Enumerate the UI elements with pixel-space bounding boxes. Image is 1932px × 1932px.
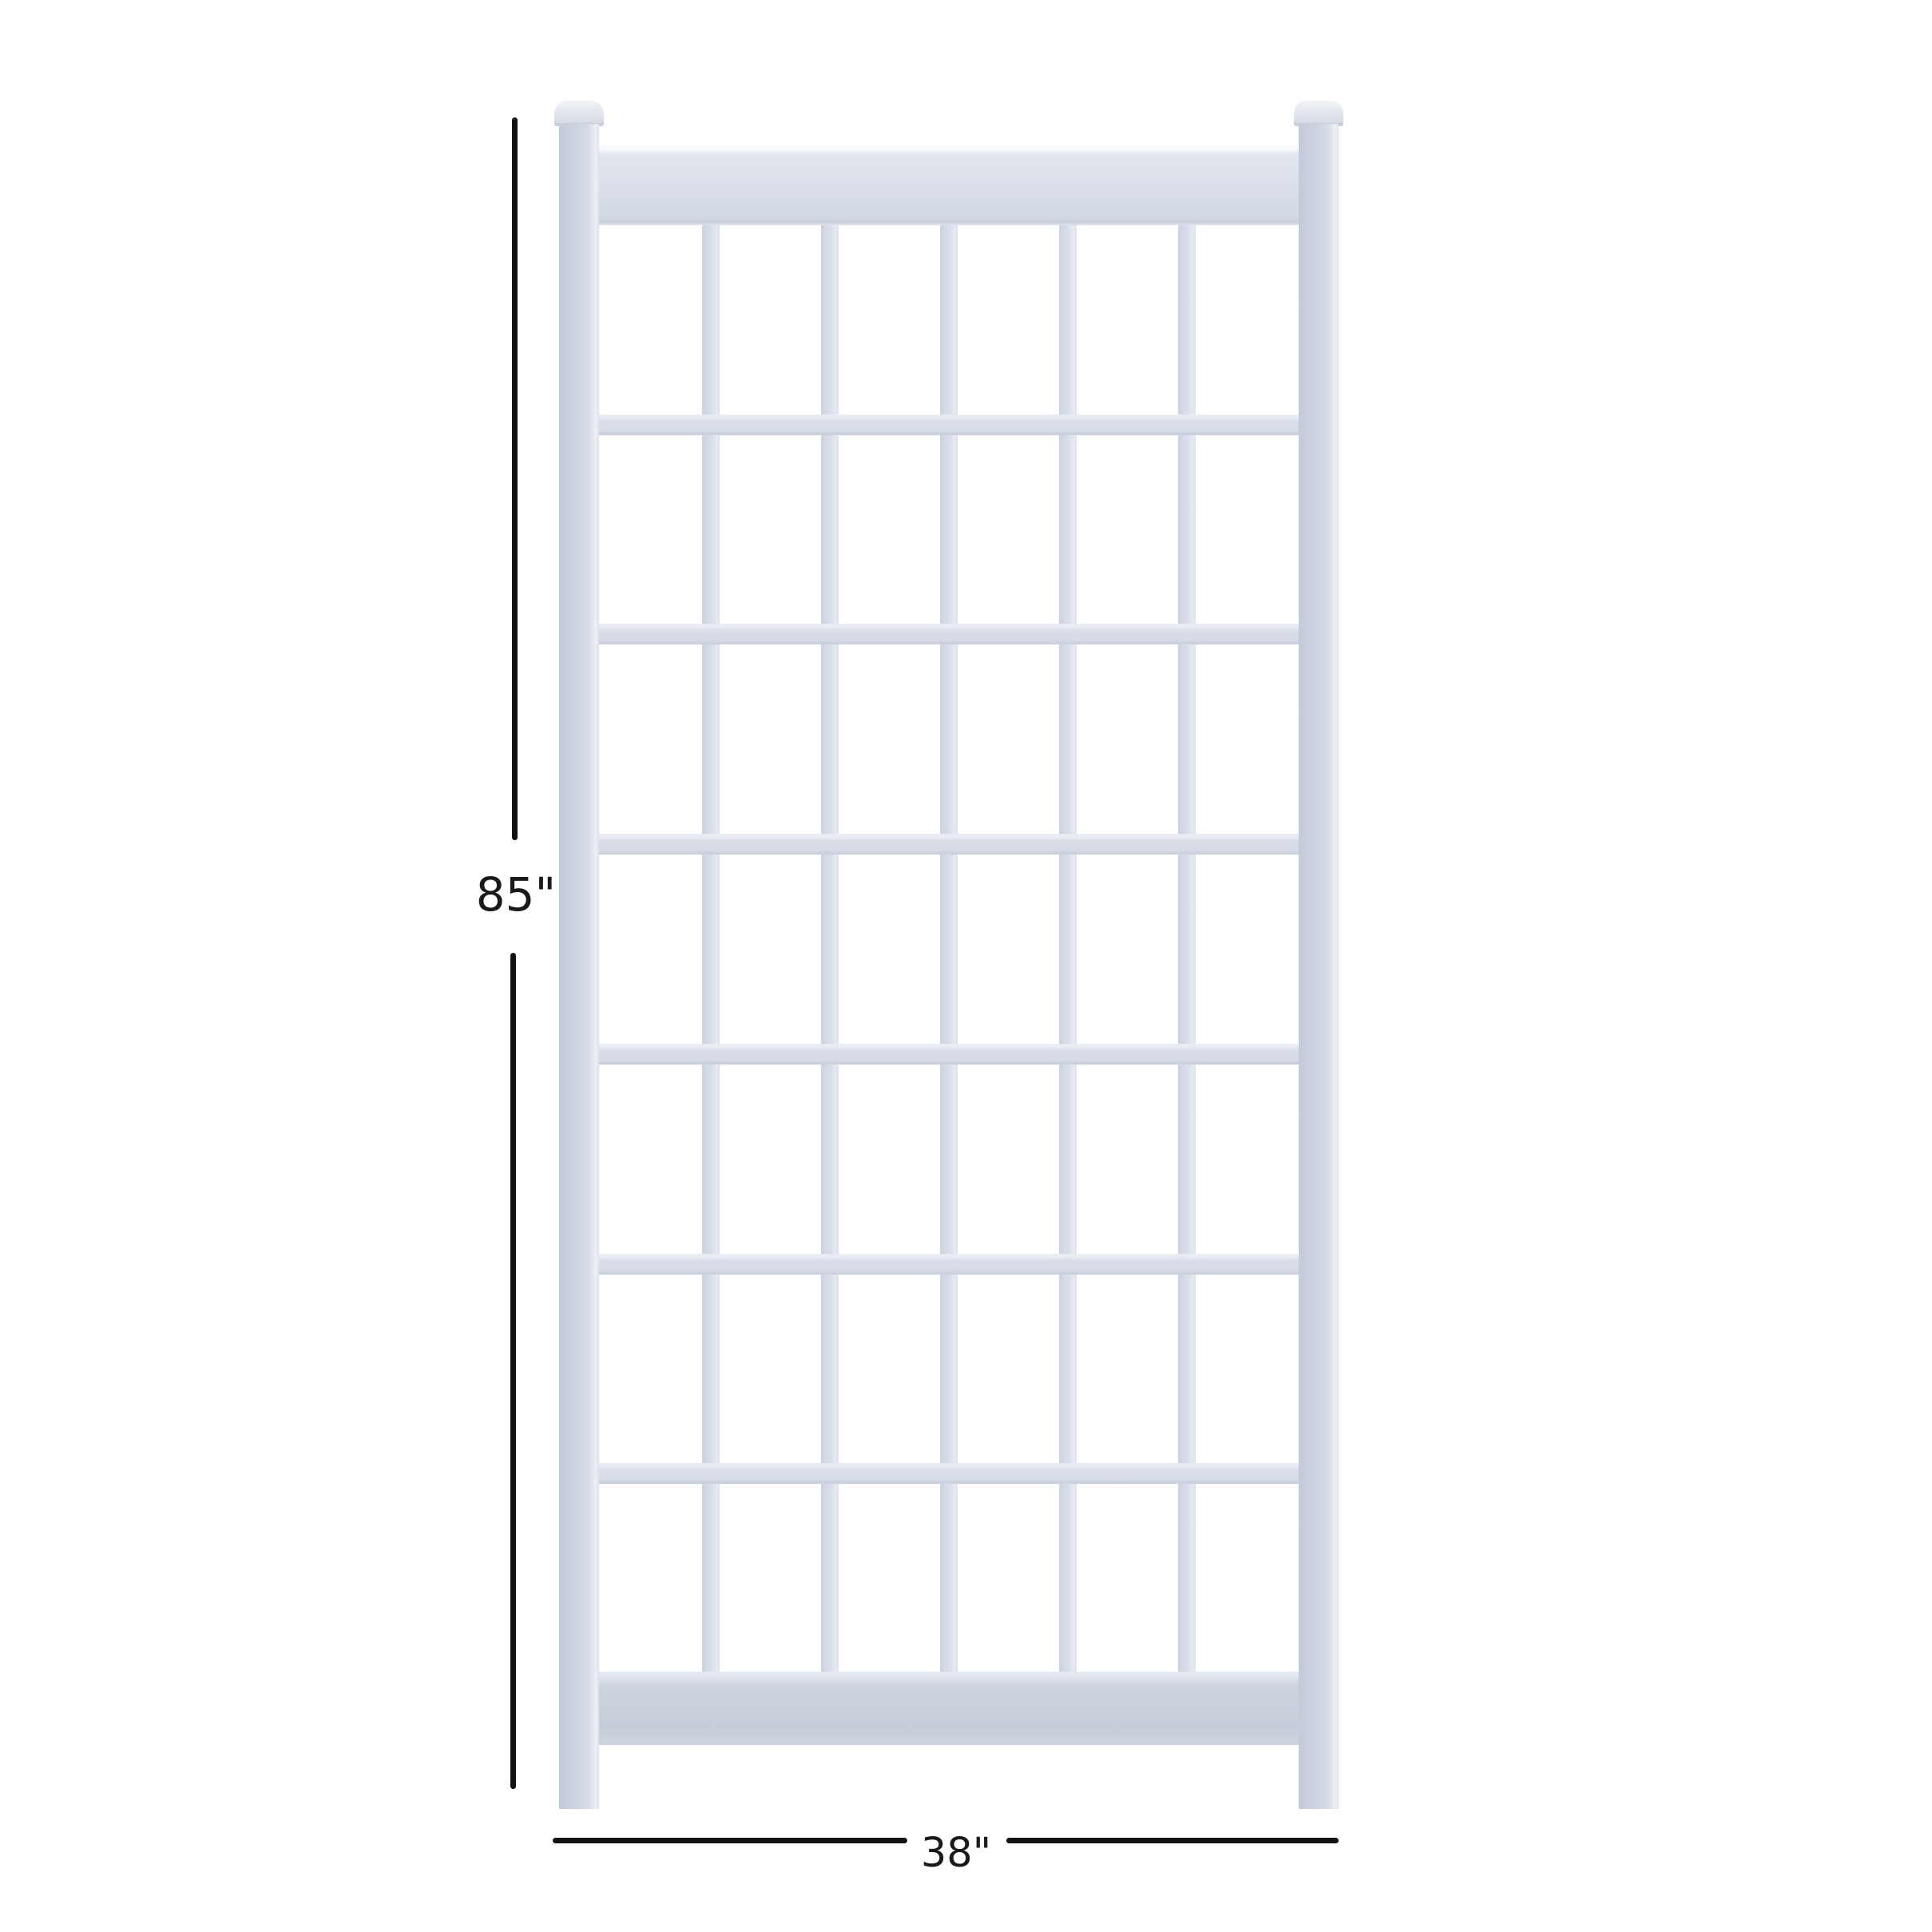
horizontal-slat — [599, 624, 1299, 645]
height-dimension-label: 85" — [476, 867, 556, 923]
width-dimension-label: 38" — [921, 1829, 991, 1878]
horizontal-slat — [599, 1254, 1299, 1275]
width-dimension-line-left — [553, 1838, 907, 1843]
product-diagram: 85" 38" — [0, 0, 1932, 1932]
horizontal-slat — [599, 1044, 1299, 1065]
vertical-slat — [821, 225, 839, 1672]
bottom-rail — [599, 1672, 1299, 1745]
left-post-cap — [554, 101, 604, 126]
left-post — [559, 124, 599, 1809]
vertical-slat — [1178, 225, 1196, 1672]
width-dimension-line-right — [1006, 1838, 1339, 1843]
height-dimension-line-lower — [510, 953, 516, 1789]
vertical-slat — [940, 225, 958, 1672]
vertical-slat — [1059, 225, 1077, 1672]
top-rail — [599, 145, 1299, 225]
horizontal-slat — [599, 834, 1299, 855]
right-post — [1299, 124, 1339, 1809]
horizontal-slat — [599, 1463, 1299, 1484]
horizontal-slat — [599, 415, 1299, 435]
right-post-cap — [1294, 101, 1343, 126]
vertical-slat — [702, 225, 720, 1672]
height-dimension-line-upper — [512, 117, 518, 840]
